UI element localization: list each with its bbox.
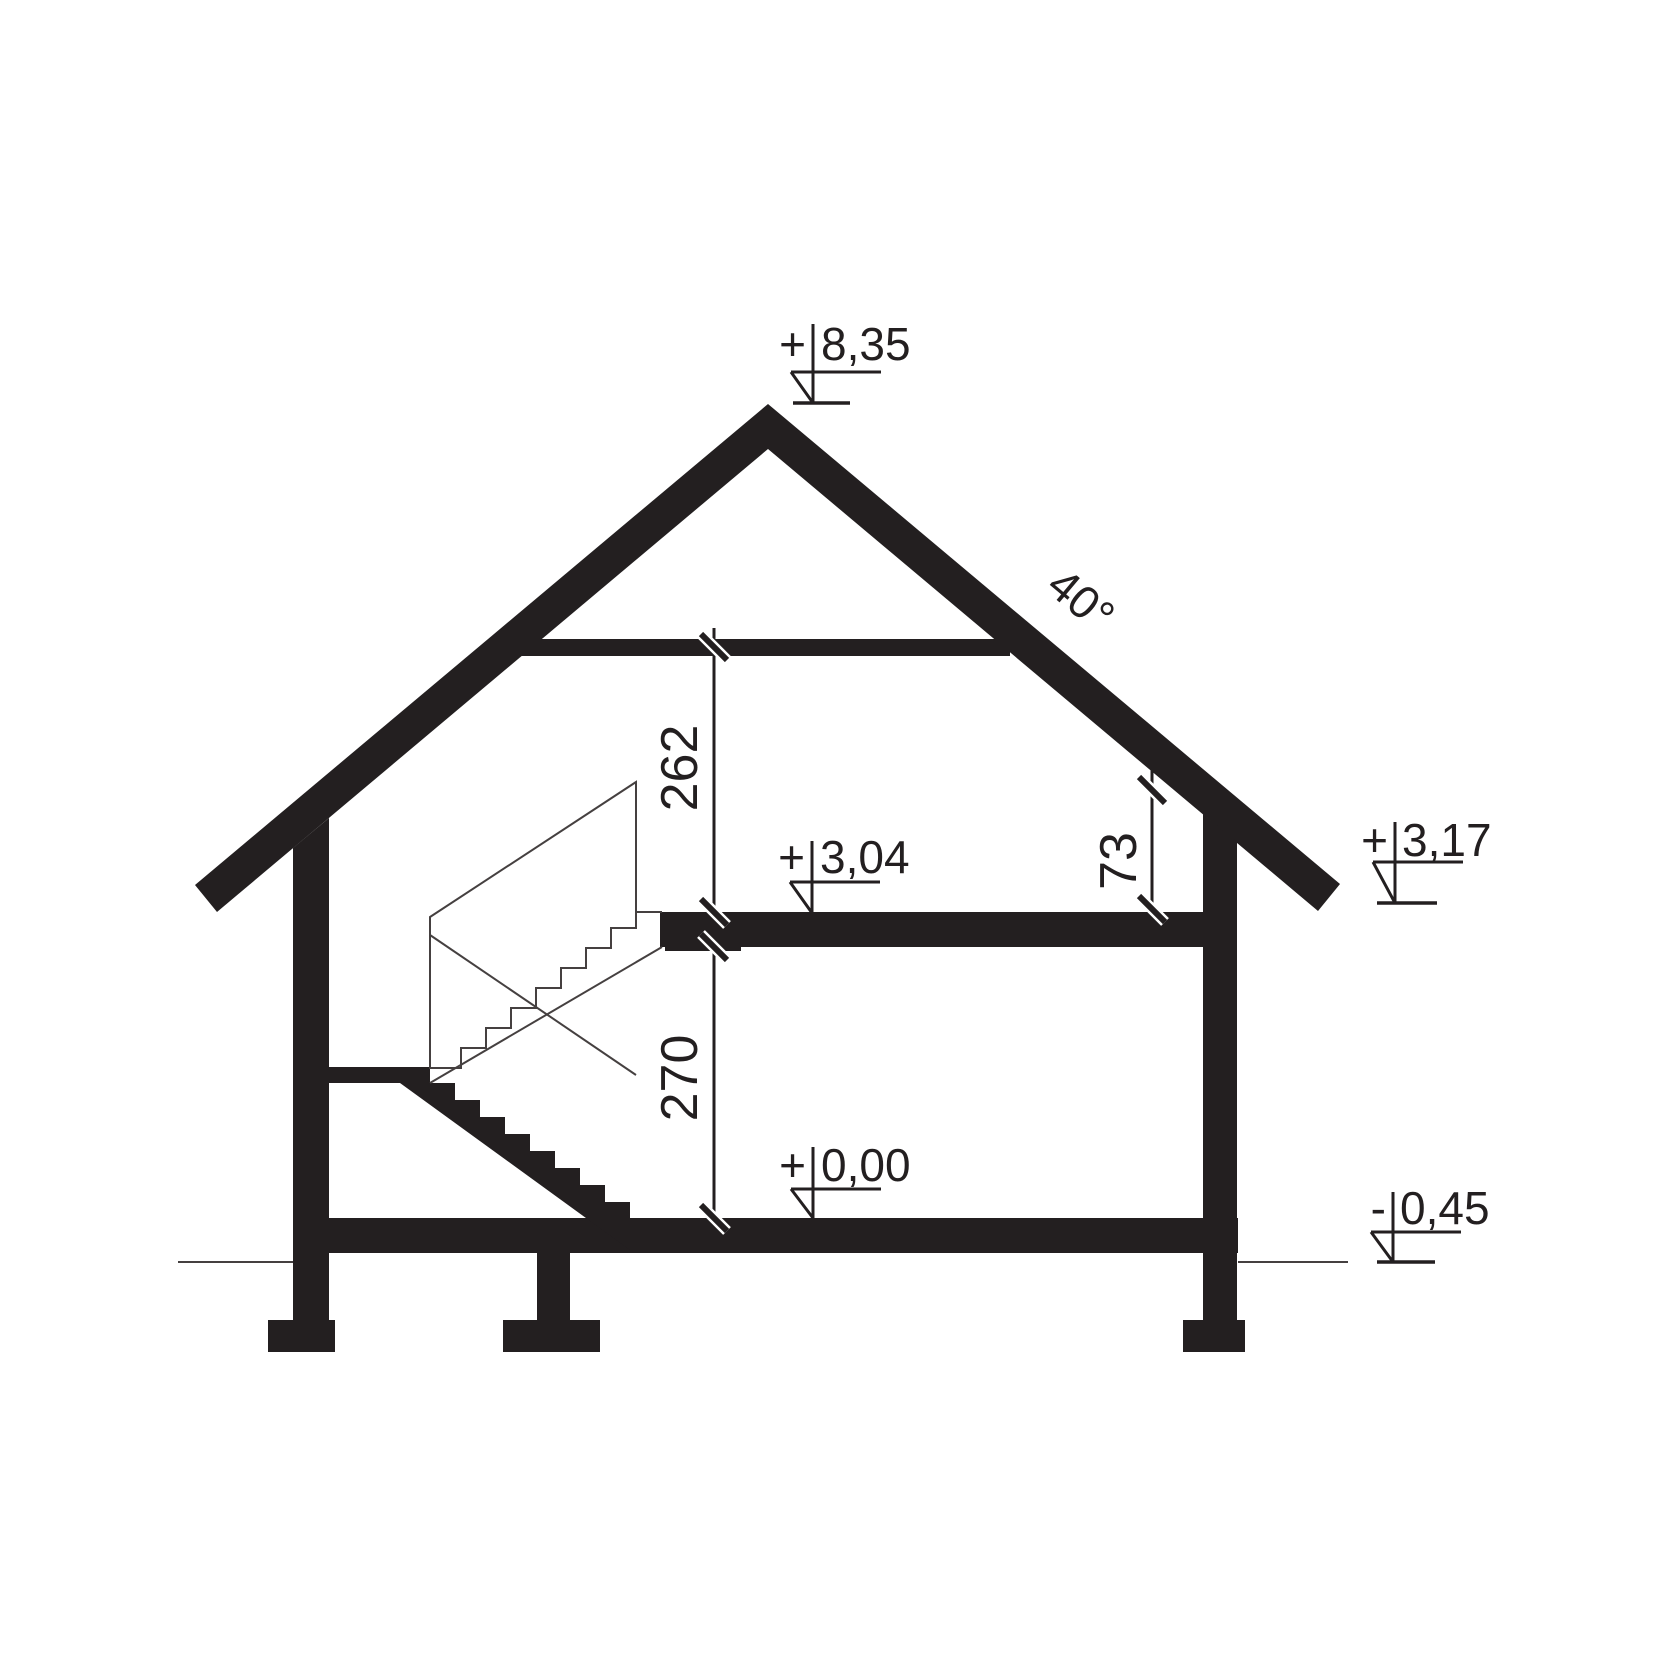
footing-middle xyxy=(503,1320,600,1352)
attic-floor-slab xyxy=(660,912,1237,947)
marker-flag xyxy=(1371,1232,1393,1262)
level-value: 0,00 xyxy=(821,1139,911,1191)
floor-slab-lip xyxy=(665,946,741,951)
level-marker-attic-floor: + 3,04 xyxy=(778,831,909,913)
stair-flight-upper xyxy=(430,782,636,1068)
structure xyxy=(195,404,1340,1352)
marker-flag xyxy=(1373,862,1395,903)
dimension-lines: 262 270 73 40° xyxy=(651,557,1165,1231)
level-marker-terrain: - 0,45 xyxy=(1371,1182,1490,1262)
roof-pitch-label: 40° xyxy=(1038,557,1125,642)
level-marker-ground-floor: + 0,00 xyxy=(779,1139,910,1218)
roof-slope-left xyxy=(195,404,768,912)
level-sign: + xyxy=(778,831,805,883)
marker-flag xyxy=(791,372,813,403)
marker-flag xyxy=(791,1189,813,1218)
dim-text-attic-height: 262 xyxy=(651,725,709,812)
dim-text-knee-wall: 73 xyxy=(1090,832,1148,890)
level-sign: - xyxy=(1371,1182,1386,1234)
level-marker-ridge: + 8,35 xyxy=(779,318,910,403)
marker-flag xyxy=(790,882,812,913)
ground-floor-slab xyxy=(300,1218,1238,1253)
level-marker-eaves: + 3,17 xyxy=(1361,814,1491,903)
stair-landing xyxy=(329,1067,430,1083)
level-sign: + xyxy=(779,1139,806,1191)
footing-left xyxy=(268,1320,335,1352)
level-value: 0,45 xyxy=(1400,1182,1490,1234)
level-value: 3,04 xyxy=(820,831,910,883)
level-value: 8,35 xyxy=(821,318,911,370)
level-sign: + xyxy=(1361,814,1388,866)
attic-ceiling-slab xyxy=(515,639,1010,656)
level-sign: + xyxy=(779,318,806,370)
footing-right xyxy=(1183,1320,1245,1352)
stair-upper-flight-outline xyxy=(430,782,662,1083)
foundation-pier-middle xyxy=(537,1253,570,1320)
architectural-section-sheet: 262 270 73 40° + 8,35 + 3,04 + 3,17 + 0,… xyxy=(0,0,1680,1680)
house-cross-section-drawing: 262 270 73 40° + 8,35 + 3,04 + 3,17 + 0,… xyxy=(0,0,1680,1680)
level-value: 3,17 xyxy=(1402,814,1492,866)
dim-text-ground-height: 270 xyxy=(651,1035,709,1122)
